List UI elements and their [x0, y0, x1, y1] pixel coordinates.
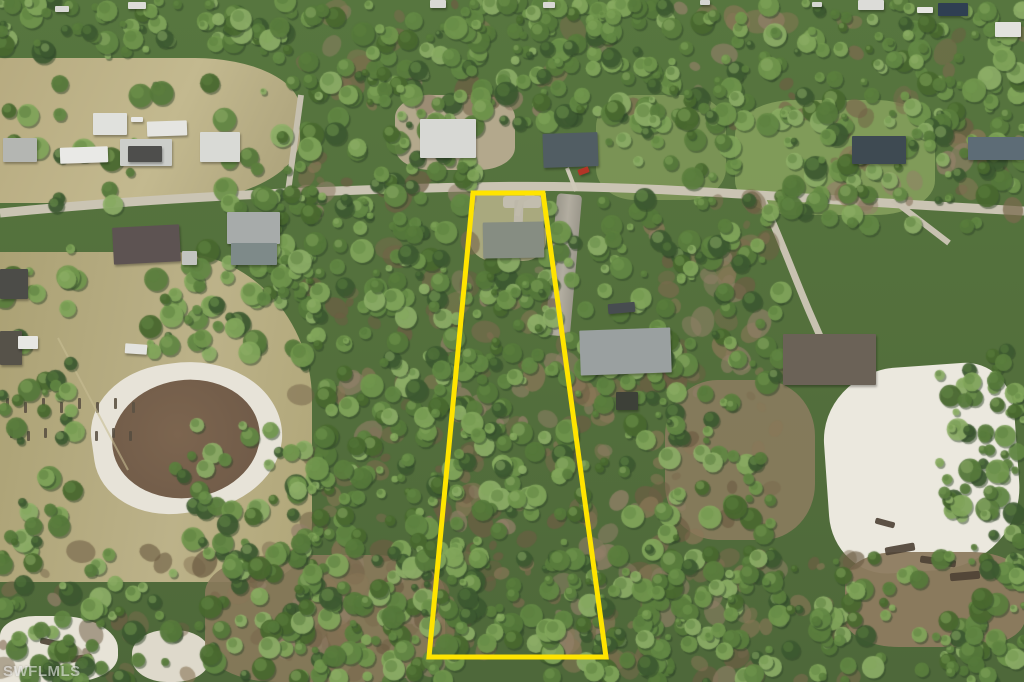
aerial-photo: SWFLMLS — [0, 0, 1024, 682]
property-boundary — [0, 0, 1024, 682]
watermark: SWFLMLS — [3, 663, 81, 680]
property-boundary-line — [429, 193, 606, 657]
